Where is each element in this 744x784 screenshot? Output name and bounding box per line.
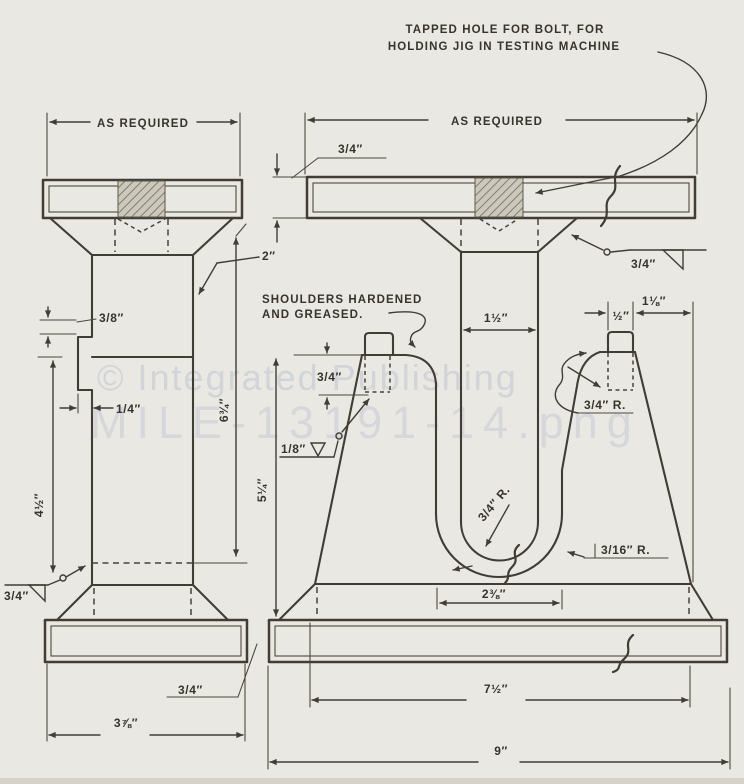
leader [217,257,259,263]
dim-as-required-right: AS REQUIRED [451,116,543,128]
tapped-hole-hatch-right [475,178,523,217]
dim-shoulder-depth: 3/4″ [317,370,342,384]
dim-step-height: 3/8″ [99,311,124,325]
weld-leader [611,250,630,252]
dim-post-top-width: 1⅛″ [642,294,666,308]
drawing-page: © Integrated Publishing MILE-13191-14.pn… [0,0,744,784]
leader [77,319,96,322]
weld-symbol-left-base: 3/4″ [4,566,85,603]
dim-slot-radius: 3/16″ R. [601,543,650,557]
page-edge-strip [0,778,744,784]
dim-tab-width: 1/4″ [116,402,141,416]
weld-leader-arrow [572,235,603,250]
right-taper-right [538,218,577,252]
dim-col-width: 2″ [262,249,276,263]
dim-base-width: 3⅞″ [114,716,138,730]
note-leader [536,52,706,193]
weld-size-label: 3/4″ [4,589,29,603]
note-tapped-hole-line2: HOLDING JIG IN TESTING MACHINE [388,41,620,53]
extension-line [236,224,246,236]
watermark-line2: MILE-13191-14.png [90,397,641,448]
left-base-flare-right [193,585,228,620]
note-tapped-hole-line1: TAPPED HOLE FOR BOLT, FOR [406,24,605,36]
shoulder-insert-right [608,332,633,352]
dim-col-height: 6¾″ [217,398,231,422]
drill-point-hidden-left [118,219,165,232]
dim-body-width: 7½″ [484,682,508,696]
dim-shoulder-width: ½″ [613,309,630,323]
dim-slot-width: 2⅜″ [482,587,506,601]
weld-leader-circle [604,249,610,255]
weld-symbol-right-taper: 3/4″ [572,235,706,271]
jig-engineering-drawing: © Integrated Publishing MILE-13191-14.pn… [0,0,744,784]
right-base-flare-left [279,584,315,620]
note-shoulders-line1: SHOULDERS HARDENED [262,294,422,306]
fillet-weld-icon [29,585,45,601]
dim-post-radius: 3/4″ R. [584,398,626,412]
leader-arrow [568,552,584,557]
weld-leader-arrow [66,566,85,577]
left-base-flare-left [57,585,92,620]
tapped-hole-hatch-left [118,181,165,217]
dim-body-height: 5¼″ [255,478,269,502]
right-taper-left [420,218,461,252]
drill-point-hidden-right [480,219,518,231]
left-base-plate-inner [51,626,241,656]
break-line-icon [613,635,633,672]
dim-base-width-right: 9″ [494,744,508,758]
right-base-plate-inner [275,626,721,656]
weld-size-label: 1/8″ [281,442,306,456]
stem-bottom-radius [461,522,538,561]
leader-arrow [199,263,217,294]
shoulder-insert-right-hidden [608,353,633,390]
weld-leader-circle [60,575,66,581]
left-taper-left [50,218,92,255]
right-base-flare-right [691,584,713,620]
fillet-weld-icon [663,250,683,269]
break-line-icon [505,545,519,583]
dim-as-required-left: AS REQUIRED [97,118,189,130]
weld-size-label: 3/4″ [631,257,656,271]
dim-plate-thickness: 3/4″ [338,142,363,156]
dim-stem-width: 1½″ [484,311,508,325]
left-taper-right [193,218,233,255]
dim-base-thickness: 3/4″ [178,683,203,697]
shoulder-insert-left [365,333,393,355]
note-leader [389,312,425,347]
weld-leader [48,580,60,585]
leader-arrow [568,367,600,387]
watermark-line1: © Integrated Publishing [97,357,518,398]
dim-lower-height: 4½″ [32,493,46,517]
note-shoulders-line2: AND GREASED. [262,309,363,321]
dim-stem-radius: 3/4″ R. [475,483,513,524]
